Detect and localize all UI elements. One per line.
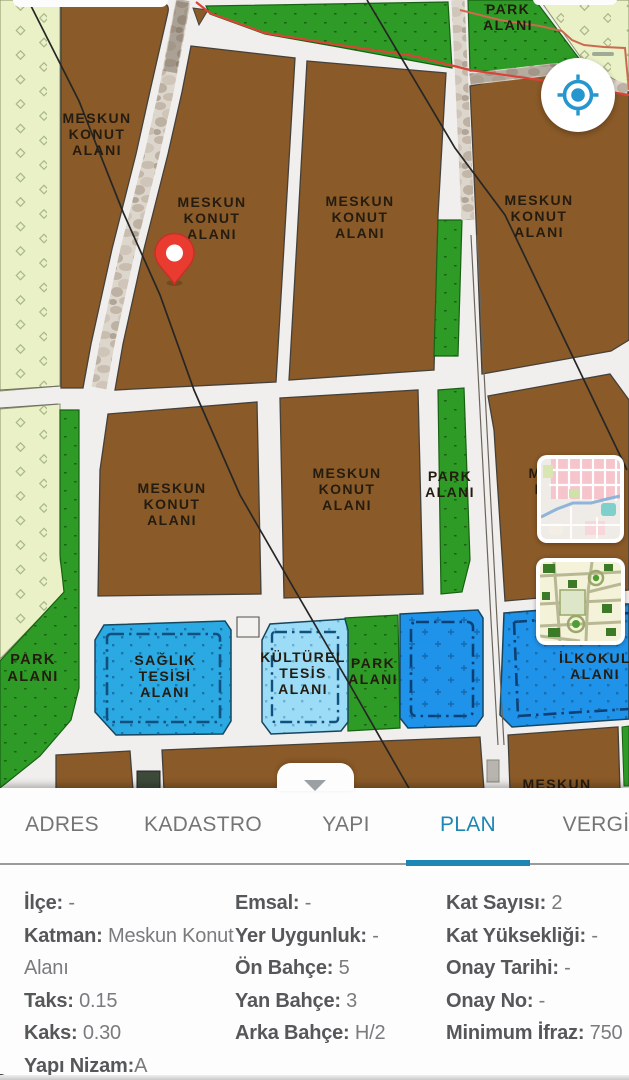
svg-text:ALANI: ALANI [348, 671, 398, 687]
svg-text:ALANI: ALANI [335, 225, 385, 241]
svg-text:TESİSİ: TESİSİ [139, 668, 192, 684]
svg-text:MESKUN: MESKUN [504, 192, 573, 208]
svg-text:SAĞLIK: SAĞLIK [134, 651, 195, 668]
svg-text:ALANI: ALANI [7, 669, 58, 685]
svg-text:MESKUN: MESKUN [312, 465, 381, 481]
svg-text:MESKUN: MESKUN [325, 193, 394, 209]
svg-text:ALANI: ALANI [322, 497, 372, 513]
svg-text:KONUT: KONUT [69, 126, 126, 142]
svg-text:İLKOKUL: İLKOKUL [559, 650, 629, 666]
svg-text:ALANI: ALANI [570, 666, 620, 682]
svg-text:KONUT: KONUT [511, 208, 568, 224]
svg-text:ALANI: ALANI [72, 142, 122, 158]
svg-text:ALANI: ALANI [425, 484, 475, 500]
svg-text:MESKUN: MESKUN [62, 110, 131, 126]
svg-text:KONUT: KONUT [144, 496, 201, 512]
svg-text:ALANI: ALANI [187, 226, 237, 242]
svg-text:ALANI: ALANI [514, 224, 564, 240]
svg-text:MESKUN: MESKUN [177, 194, 246, 210]
svg-text:KONUT: KONUT [184, 210, 241, 226]
svg-text:PARK: PARK [351, 655, 395, 671]
svg-text:TESİS: TESİS [279, 665, 326, 681]
svg-text:MESKUN: MESKUN [137, 480, 206, 496]
svg-text:ALANI: ALANI [483, 17, 533, 33]
svg-text:KONUT: KONUT [332, 209, 389, 225]
svg-text:KÜLTÜREL: KÜLTÜREL [260, 649, 346, 665]
svg-text:PARK: PARK [486, 1, 530, 17]
svg-text:ALANI: ALANI [147, 512, 197, 528]
svg-text:PARK: PARK [428, 468, 472, 484]
svg-text:ALANI: ALANI [278, 681, 328, 697]
svg-text:ALANI: ALANI [140, 684, 190, 700]
svg-text:PARK: PARK [10, 652, 56, 668]
svg-text:KONUT: KONUT [319, 481, 376, 497]
